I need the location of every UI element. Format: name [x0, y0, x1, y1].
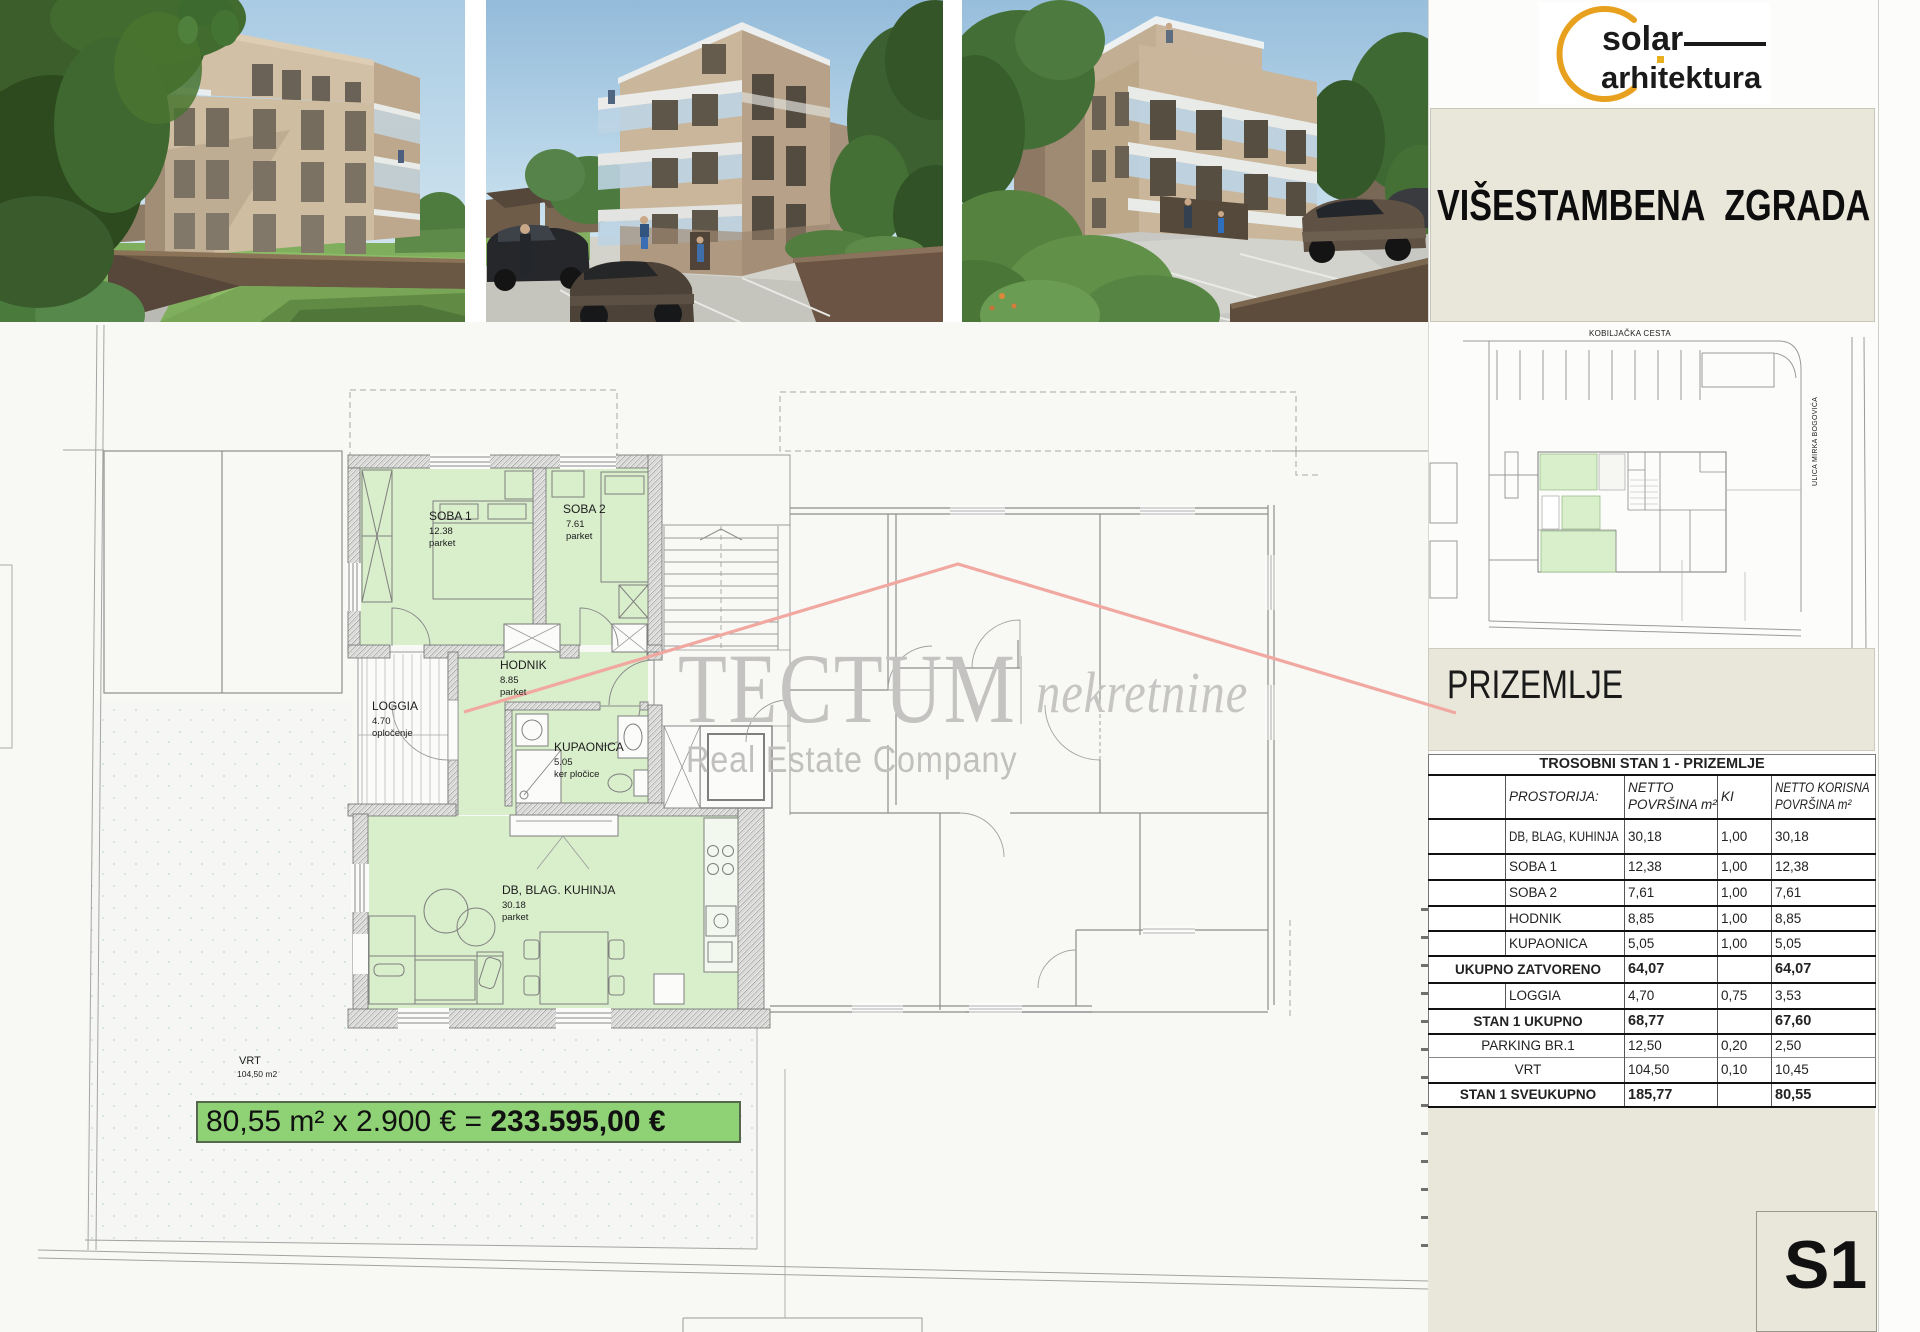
svg-text:12.38: 12.38 [429, 526, 453, 537]
svg-text:KUPAONICA: KUPAONICA [554, 740, 624, 754]
svg-text:parket: parket [566, 531, 593, 542]
svg-text:HODNIK: HODNIK [500, 658, 547, 672]
svg-text:nekretnine: nekretnine [1036, 660, 1248, 725]
svg-text:80,55 m² x 2.900 € = 233.595,0: 80,55 m² x 2.900 € = 233.595,00 € [206, 1105, 666, 1138]
svg-text:4.70: 4.70 [372, 716, 391, 727]
svg-text:ker pločice: ker pločice [554, 769, 599, 780]
svg-text:SOBA 2: SOBA 2 [563, 502, 606, 516]
svg-text:Real Estate Company: Real Estate Company [686, 740, 1017, 780]
svg-text:8.85: 8.85 [500, 675, 519, 686]
svg-text:LOGGIA: LOGGIA [372, 699, 418, 713]
svg-text:arhitektura: arhitektura [1601, 60, 1762, 95]
svg-text:30.18: 30.18 [502, 900, 526, 911]
svg-text:DB, BLAG. KUHINJA: DB, BLAG. KUHINJA [502, 883, 615, 897]
svg-text:TECTUM: TECTUM [678, 633, 1016, 745]
svg-text:7.61: 7.61 [566, 519, 585, 530]
svg-text:104,50 m2: 104,50 m2 [237, 1069, 277, 1079]
svg-text:ULICA MIRKA BOGOVIĆA: ULICA MIRKA BOGOVIĆA [1810, 397, 1819, 486]
svg-text:parket: parket [502, 912, 529, 923]
svg-text:KOBILJAČKA CESTA: KOBILJAČKA CESTA [1589, 329, 1671, 338]
svg-text:5.05: 5.05 [554, 757, 573, 768]
svg-text:VRT: VRT [239, 1055, 261, 1067]
svg-text:opločenje: opločenje [372, 728, 413, 739]
svg-text:parket: parket [429, 538, 456, 549]
svg-text:SOBA 1: SOBA 1 [429, 509, 472, 523]
svg-text:parket: parket [500, 687, 527, 698]
svg-text:solar: solar [1602, 20, 1683, 58]
